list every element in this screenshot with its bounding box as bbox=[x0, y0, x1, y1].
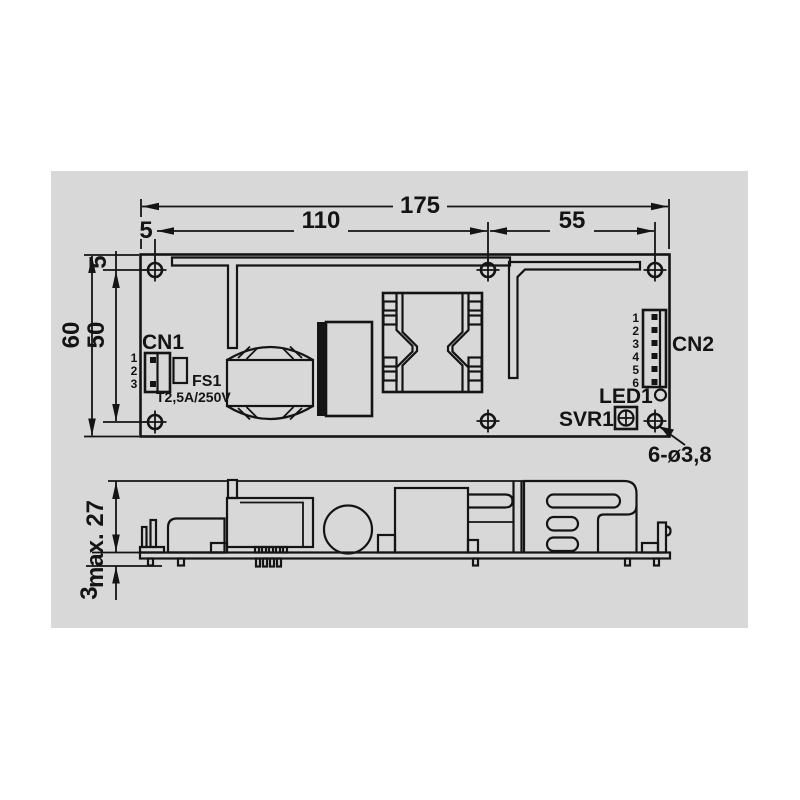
dim-hole-span-left: 110 bbox=[302, 207, 341, 234]
cn2-label: CN2 bbox=[672, 333, 714, 356]
cn1-pin-3: 3 bbox=[131, 377, 138, 391]
dim-hole-span-right: 55 bbox=[559, 207, 586, 234]
dim-hole-span-vertical: 50 bbox=[83, 322, 110, 349]
dim-max-height: max. 27 bbox=[82, 500, 109, 588]
drawing-canvas: CN1 1 2 3 FS1 T2,5A/250V bbox=[0, 0, 800, 800]
cn1-pin-1: 1 bbox=[131, 351, 138, 365]
cn2-pin-2: 2 bbox=[632, 324, 639, 338]
cn1-pin-2: 2 bbox=[131, 364, 138, 378]
dim-pin-protrusion: 3 bbox=[76, 586, 103, 599]
dim-total-height: 60 bbox=[58, 322, 85, 349]
cn2-pin-3: 3 bbox=[632, 337, 639, 351]
cn2-pin-5: 5 bbox=[632, 363, 639, 377]
fs1-label: FS1 bbox=[192, 373, 221, 390]
dim-edge-to-hole: 5 bbox=[139, 217, 152, 244]
dim-top-edge-to-hole: 5 bbox=[85, 255, 112, 268]
svr1-label: SVR1 bbox=[559, 408, 614, 431]
cn1-label: CN1 bbox=[142, 331, 184, 354]
mechanical-drawing: CN1 1 2 3 FS1 T2,5A/250V bbox=[0, 0, 800, 800]
fuse-rating-label: T2,5A/250V bbox=[156, 389, 231, 405]
led1-label: LED1 bbox=[599, 385, 653, 408]
dim-total-width: 175 bbox=[400, 192, 440, 219]
cn2-pin-1: 1 bbox=[632, 311, 639, 325]
cn2-pin-4: 4 bbox=[632, 350, 639, 364]
hole-note-label: 6-ø3,8 bbox=[648, 442, 712, 467]
